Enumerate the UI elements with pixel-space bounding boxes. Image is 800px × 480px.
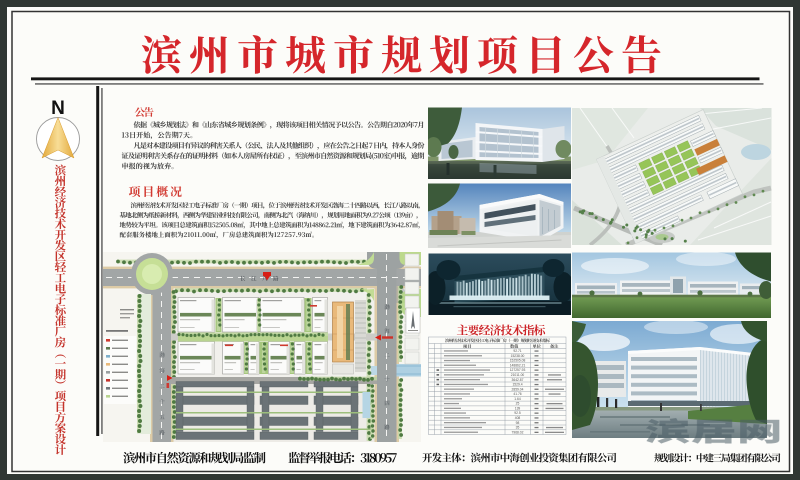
svg-text:7968.02: 7968.02 [512, 430, 524, 434]
svg-text:35: 35 [516, 426, 520, 430]
svg-text:139: 139 [515, 407, 521, 411]
svg-text:N: N [51, 98, 65, 119]
svg-text:3642.87: 3642.87 [512, 378, 524, 382]
svg-text:92.71: 92.71 [513, 349, 521, 353]
svg-text:15238.00: 15238.00 [511, 354, 525, 358]
svg-text:1529.4: 1529.4 [512, 383, 522, 387]
svg-text:25: 25 [516, 402, 520, 406]
svg-text:98: 98 [516, 421, 520, 425]
svg-text:2859.04: 2859.04 [512, 387, 524, 391]
svg-text:21011.00: 21011.00 [511, 373, 525, 377]
svg-text:408: 408 [515, 416, 521, 420]
svg-text:1.64: 1.64 [514, 397, 521, 401]
svg-text:92.5: 92.5 [514, 411, 521, 415]
svg-text:152505.08: 152505.08 [510, 359, 526, 363]
svg-text:148862.21: 148862.21 [510, 363, 526, 367]
svg-text:41.76: 41.76 [513, 392, 521, 396]
svg-text:127257.93: 127257.93 [510, 368, 526, 372]
